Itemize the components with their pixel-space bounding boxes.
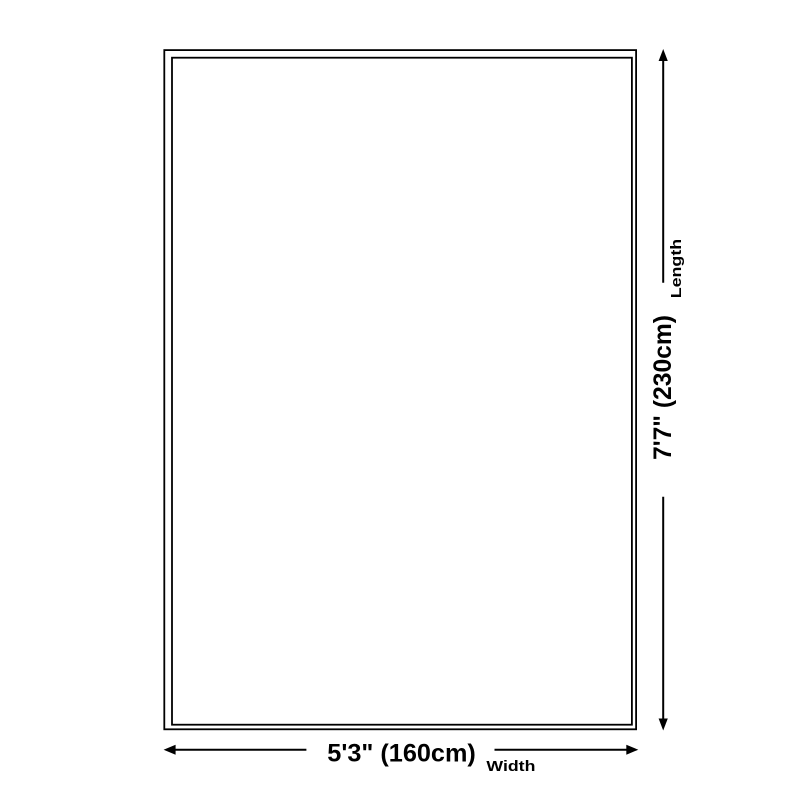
svg-text:5'3" (160cm): 5'3" (160cm) — [327, 740, 476, 768]
svg-text:7'7" (230cm): 7'7" (230cm) — [649, 315, 677, 460]
svg-text:Width: Width — [486, 759, 535, 775]
svg-text:Length: Length — [668, 239, 685, 299]
